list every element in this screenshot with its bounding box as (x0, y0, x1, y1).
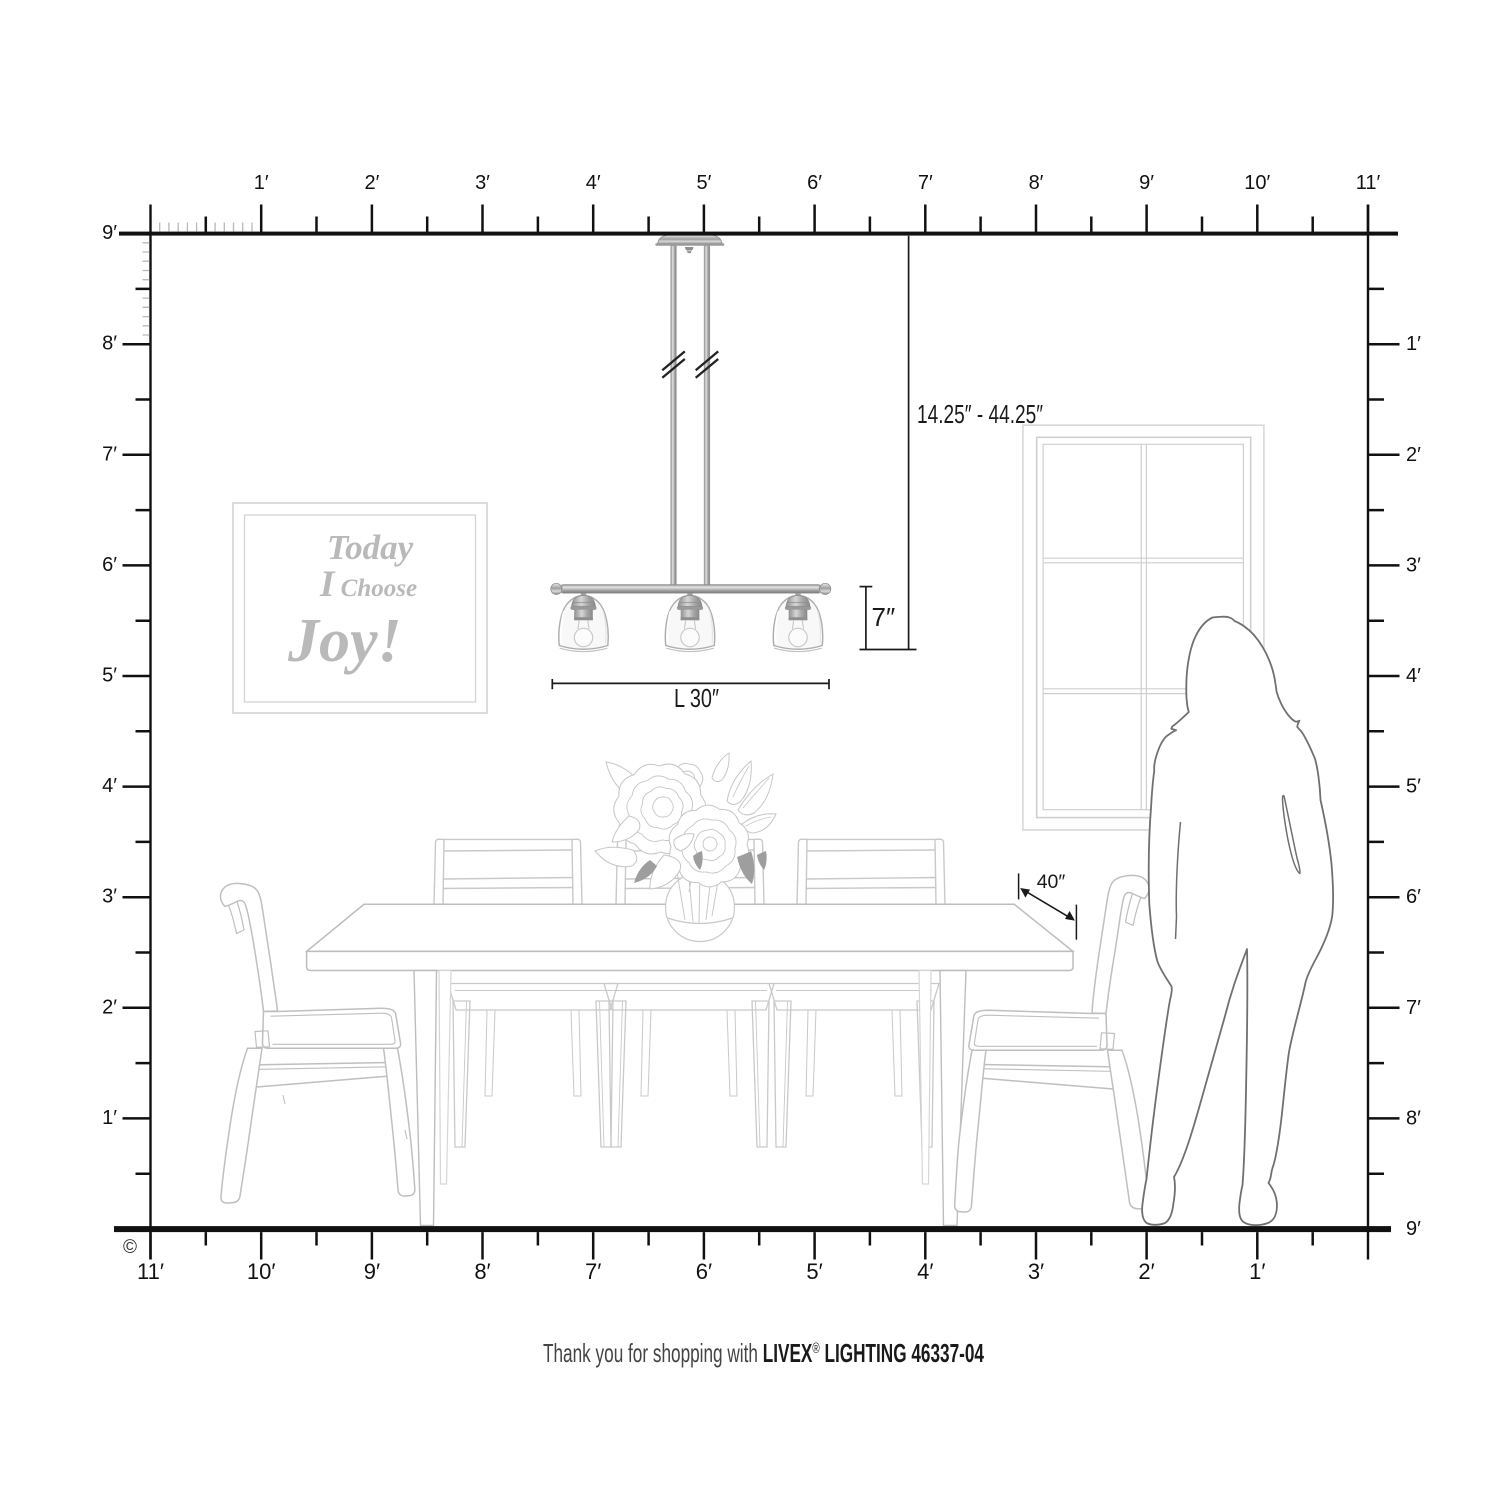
svg-text:14.25″ - 44.25″: 14.25″ - 44.25″ (917, 399, 1043, 429)
svg-text:7′: 7′ (585, 1259, 601, 1284)
svg-text:7′: 7′ (102, 443, 117, 465)
svg-text:6′: 6′ (807, 172, 822, 194)
svg-text:8′: 8′ (102, 333, 117, 355)
svg-text:3′: 3′ (475, 172, 490, 194)
svg-text:8′: 8′ (1029, 172, 1044, 194)
svg-text:2′: 2′ (364, 172, 379, 194)
svg-text:5′: 5′ (102, 665, 117, 687)
svg-text:L 30″: L 30″ (674, 683, 719, 713)
svg-text:6′: 6′ (696, 1259, 712, 1284)
svg-text:8′: 8′ (1406, 1107, 1421, 1129)
svg-text:2′: 2′ (102, 996, 117, 1018)
svg-text:4′: 4′ (1406, 665, 1421, 687)
svg-text:Joy!: Joy! (287, 607, 402, 675)
svg-text:4′: 4′ (586, 172, 601, 194)
svg-text:9′: 9′ (364, 1259, 380, 1284)
svg-text:9′: 9′ (1139, 172, 1154, 194)
svg-text:©: © (123, 1237, 137, 1258)
svg-text:2′: 2′ (1138, 1259, 1154, 1284)
svg-text:9′: 9′ (102, 222, 117, 244)
svg-text:40″: 40″ (1037, 871, 1066, 893)
svg-text:11′: 11′ (137, 1259, 164, 1284)
svg-text:4′: 4′ (102, 775, 117, 797)
svg-text:1′: 1′ (254, 172, 269, 194)
svg-text:4′: 4′ (917, 1259, 933, 1284)
svg-text:5′: 5′ (1406, 776, 1421, 798)
svg-text:7′: 7′ (1406, 997, 1421, 1019)
svg-text:10′: 10′ (1244, 172, 1270, 194)
svg-text:5′: 5′ (696, 172, 711, 194)
svg-text:6′: 6′ (1406, 886, 1421, 908)
svg-text:Thank you for shopping with LI: Thank you for shopping with LIVEX® LIGHT… (543, 1338, 984, 1368)
svg-text:3′: 3′ (102, 886, 117, 908)
svg-text:11′: 11′ (1356, 172, 1381, 194)
svg-text:9′: 9′ (1406, 1218, 1421, 1240)
svg-text:6′: 6′ (102, 554, 117, 576)
svg-text:1′: 1′ (1406, 333, 1421, 355)
svg-text:1′: 1′ (102, 1107, 117, 1129)
svg-text:7″: 7″ (872, 602, 896, 632)
svg-text:3′: 3′ (1028, 1259, 1044, 1284)
svg-text:5′: 5′ (806, 1259, 822, 1284)
svg-text:Today: Today (327, 528, 414, 567)
svg-text:8′: 8′ (474, 1259, 490, 1284)
svg-text:2′: 2′ (1406, 444, 1421, 466)
svg-text:1′: 1′ (1249, 1259, 1265, 1284)
svg-text:7′: 7′ (918, 172, 933, 194)
svg-text:3′: 3′ (1406, 554, 1421, 576)
svg-text:10′: 10′ (247, 1259, 276, 1284)
